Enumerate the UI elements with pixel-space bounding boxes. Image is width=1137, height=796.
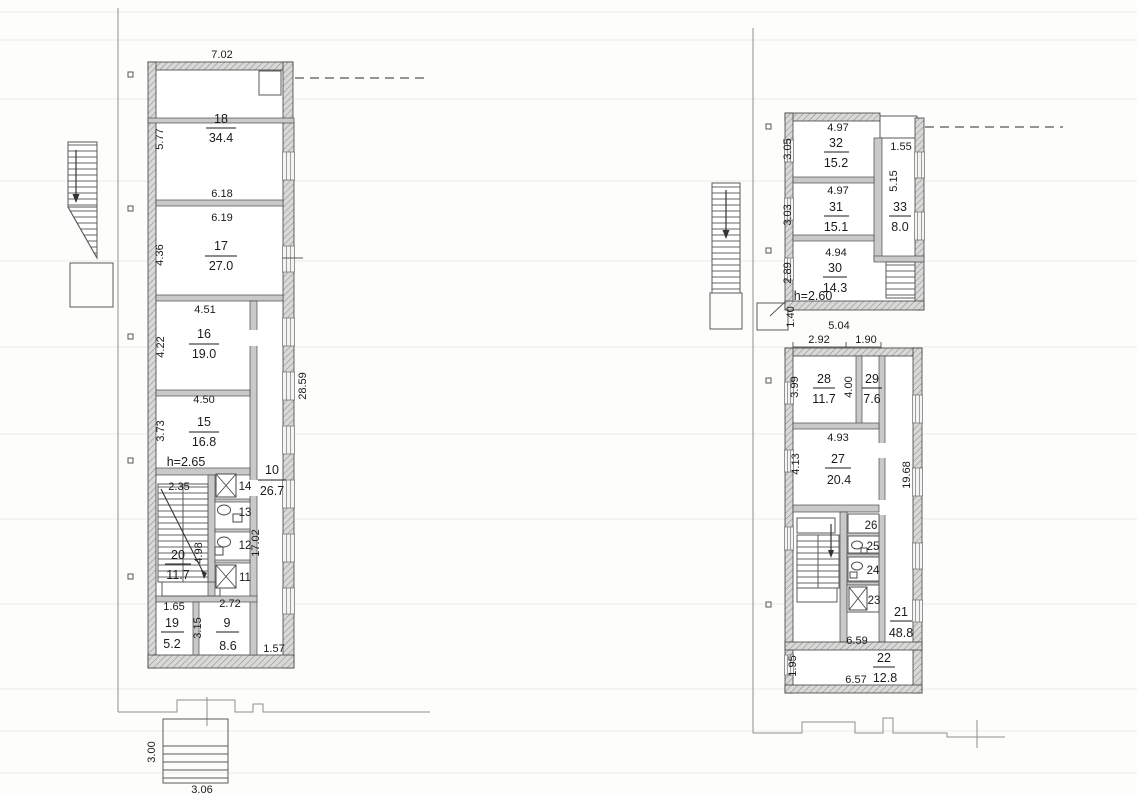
room-number: 25 <box>867 541 880 553</box>
dim-label: 2.72 <box>219 598 240 610</box>
room-area: 12.8 <box>873 671 897 685</box>
room-number: 28 <box>817 372 831 386</box>
dim-label: 4.94 <box>825 247 846 259</box>
room-number: 13 <box>239 507 252 519</box>
room-area: 34.4 <box>209 131 233 145</box>
dim-label: 3.05 <box>782 138 794 159</box>
room-area: 8.6 <box>219 639 236 653</box>
dim-label: 3.15 <box>192 617 204 638</box>
right-internal-stair-nook <box>886 262 915 298</box>
room-area: 15.1 <box>824 220 848 234</box>
room-number: 30 <box>828 261 842 275</box>
room-number: 9 <box>224 616 231 630</box>
dim-label: 4.50 <box>193 394 214 406</box>
room-area: 48.8 <box>889 626 913 640</box>
room-area: 5.2 <box>163 637 180 651</box>
dim-label: 4.36 <box>154 244 166 265</box>
room-number: 16 <box>197 327 211 341</box>
room-area: 11.7 <box>812 392 835 406</box>
right-plan: 4.97 32 15.2 3.05 1.55 5.15 4.97 31 15.1… <box>710 28 1063 748</box>
dim-label: 4.13 <box>790 453 802 474</box>
room-number: 19 <box>165 616 179 630</box>
dim-label: 4.93 <box>827 432 848 444</box>
room-area: 26.7 <box>260 484 284 498</box>
room-number: 20 <box>171 548 185 562</box>
room-number: 10 <box>265 463 279 477</box>
room-number: 27 <box>831 452 845 466</box>
dim-label: 1.90 <box>855 334 876 346</box>
room-number: 29 <box>865 372 879 386</box>
dim-label: 4.22 <box>155 336 167 357</box>
dim-label: 4.97 <box>827 185 848 197</box>
room-area: 8.0 <box>891 220 908 234</box>
shaft-cross-icon <box>849 587 867 610</box>
room-number: 17 <box>214 239 228 253</box>
dim-label: 6.57 <box>845 674 866 686</box>
room-number: 32 <box>829 136 843 150</box>
room-number: 26 <box>865 520 878 532</box>
left-external-stair <box>68 142 113 307</box>
ceiling-height-note: h=2.65 <box>167 455 206 469</box>
shaft-cross-icon <box>216 565 236 588</box>
right-vestibule <box>757 303 788 330</box>
right-external-stair <box>710 183 788 330</box>
dim-label: 2.92 <box>808 334 829 346</box>
room-number: 22 <box>877 651 891 665</box>
right-axis-markers <box>766 124 771 607</box>
room-number: 11 <box>239 572 251 584</box>
dim-label: 4.51 <box>194 304 215 316</box>
dim-label: 2.89 <box>782 262 794 283</box>
room-area: 20.4 <box>827 473 851 487</box>
left-plan: 7.02 18 34.4 5.77 6.18 6.19 17 27.0 4.36… <box>68 8 430 796</box>
dim-label: 3.00 <box>146 741 158 762</box>
dim-label: 5.77 <box>154 128 166 149</box>
dim-label: 6.19 <box>211 212 232 224</box>
dim-label: 4.97 <box>827 122 848 134</box>
dim-label: 1.95 <box>787 655 799 676</box>
room-number: 15 <box>197 415 211 429</box>
room-number: 33 <box>893 200 907 214</box>
dim-label: 1.65 <box>163 601 184 613</box>
dim-label: 4.98 <box>193 542 205 563</box>
ceiling-height-note: h=2.60 <box>794 289 833 303</box>
dim-label: 4.00 <box>843 376 855 397</box>
shaft-cross-icon <box>216 474 236 497</box>
room-number: 24 <box>867 565 880 577</box>
room-number: 14 <box>239 481 252 493</box>
left-axis-markers <box>128 72 133 579</box>
dim-label: 3.06 <box>191 784 212 796</box>
dim-label: 17.02 <box>250 529 262 557</box>
room-number: 18 <box>214 112 228 126</box>
dim-label: 5.15 <box>888 170 900 191</box>
dim-label: 7.02 <box>211 49 232 61</box>
dim-label: 1.40 <box>785 306 797 327</box>
scanned-floor-plan-sheet: 7.02 18 34.4 5.77 6.18 6.19 17 27.0 4.36… <box>0 0 1137 796</box>
left-porch-landing <box>70 263 113 307</box>
room-area: 16.8 <box>192 435 216 449</box>
room-number: 31 <box>829 200 843 214</box>
dim-label: 3.99 <box>789 376 801 397</box>
dim-label: 3.73 <box>155 420 167 441</box>
dim-label: 2.35 <box>168 481 189 493</box>
room-area: 15.2 <box>824 156 848 170</box>
floor-plan-drawing: 7.02 18 34.4 5.77 6.18 6.19 17 27.0 4.36… <box>0 0 1137 796</box>
room-area: 7.6 <box>863 392 880 406</box>
room-area: 11.7 <box>166 568 189 582</box>
dim-label: 5.04 <box>828 320 849 332</box>
room-number: 21 <box>894 605 908 619</box>
dim-label: 3.03 <box>782 204 794 225</box>
right-porch-landing <box>710 293 742 329</box>
room-number: 12 <box>239 540 252 552</box>
dim-label: 1.57 <box>263 643 284 655</box>
room-number: 23 <box>868 595 881 607</box>
dim-label: 6.59 <box>846 635 867 647</box>
dim-label: 28.59 <box>297 372 309 400</box>
dim-label: 19.68 <box>901 461 913 489</box>
dim-label: 6.18 <box>211 188 232 200</box>
room-area: 27.0 <box>209 259 233 273</box>
room-area: 19.0 <box>192 347 216 361</box>
dim-label: 1.55 <box>890 141 911 153</box>
